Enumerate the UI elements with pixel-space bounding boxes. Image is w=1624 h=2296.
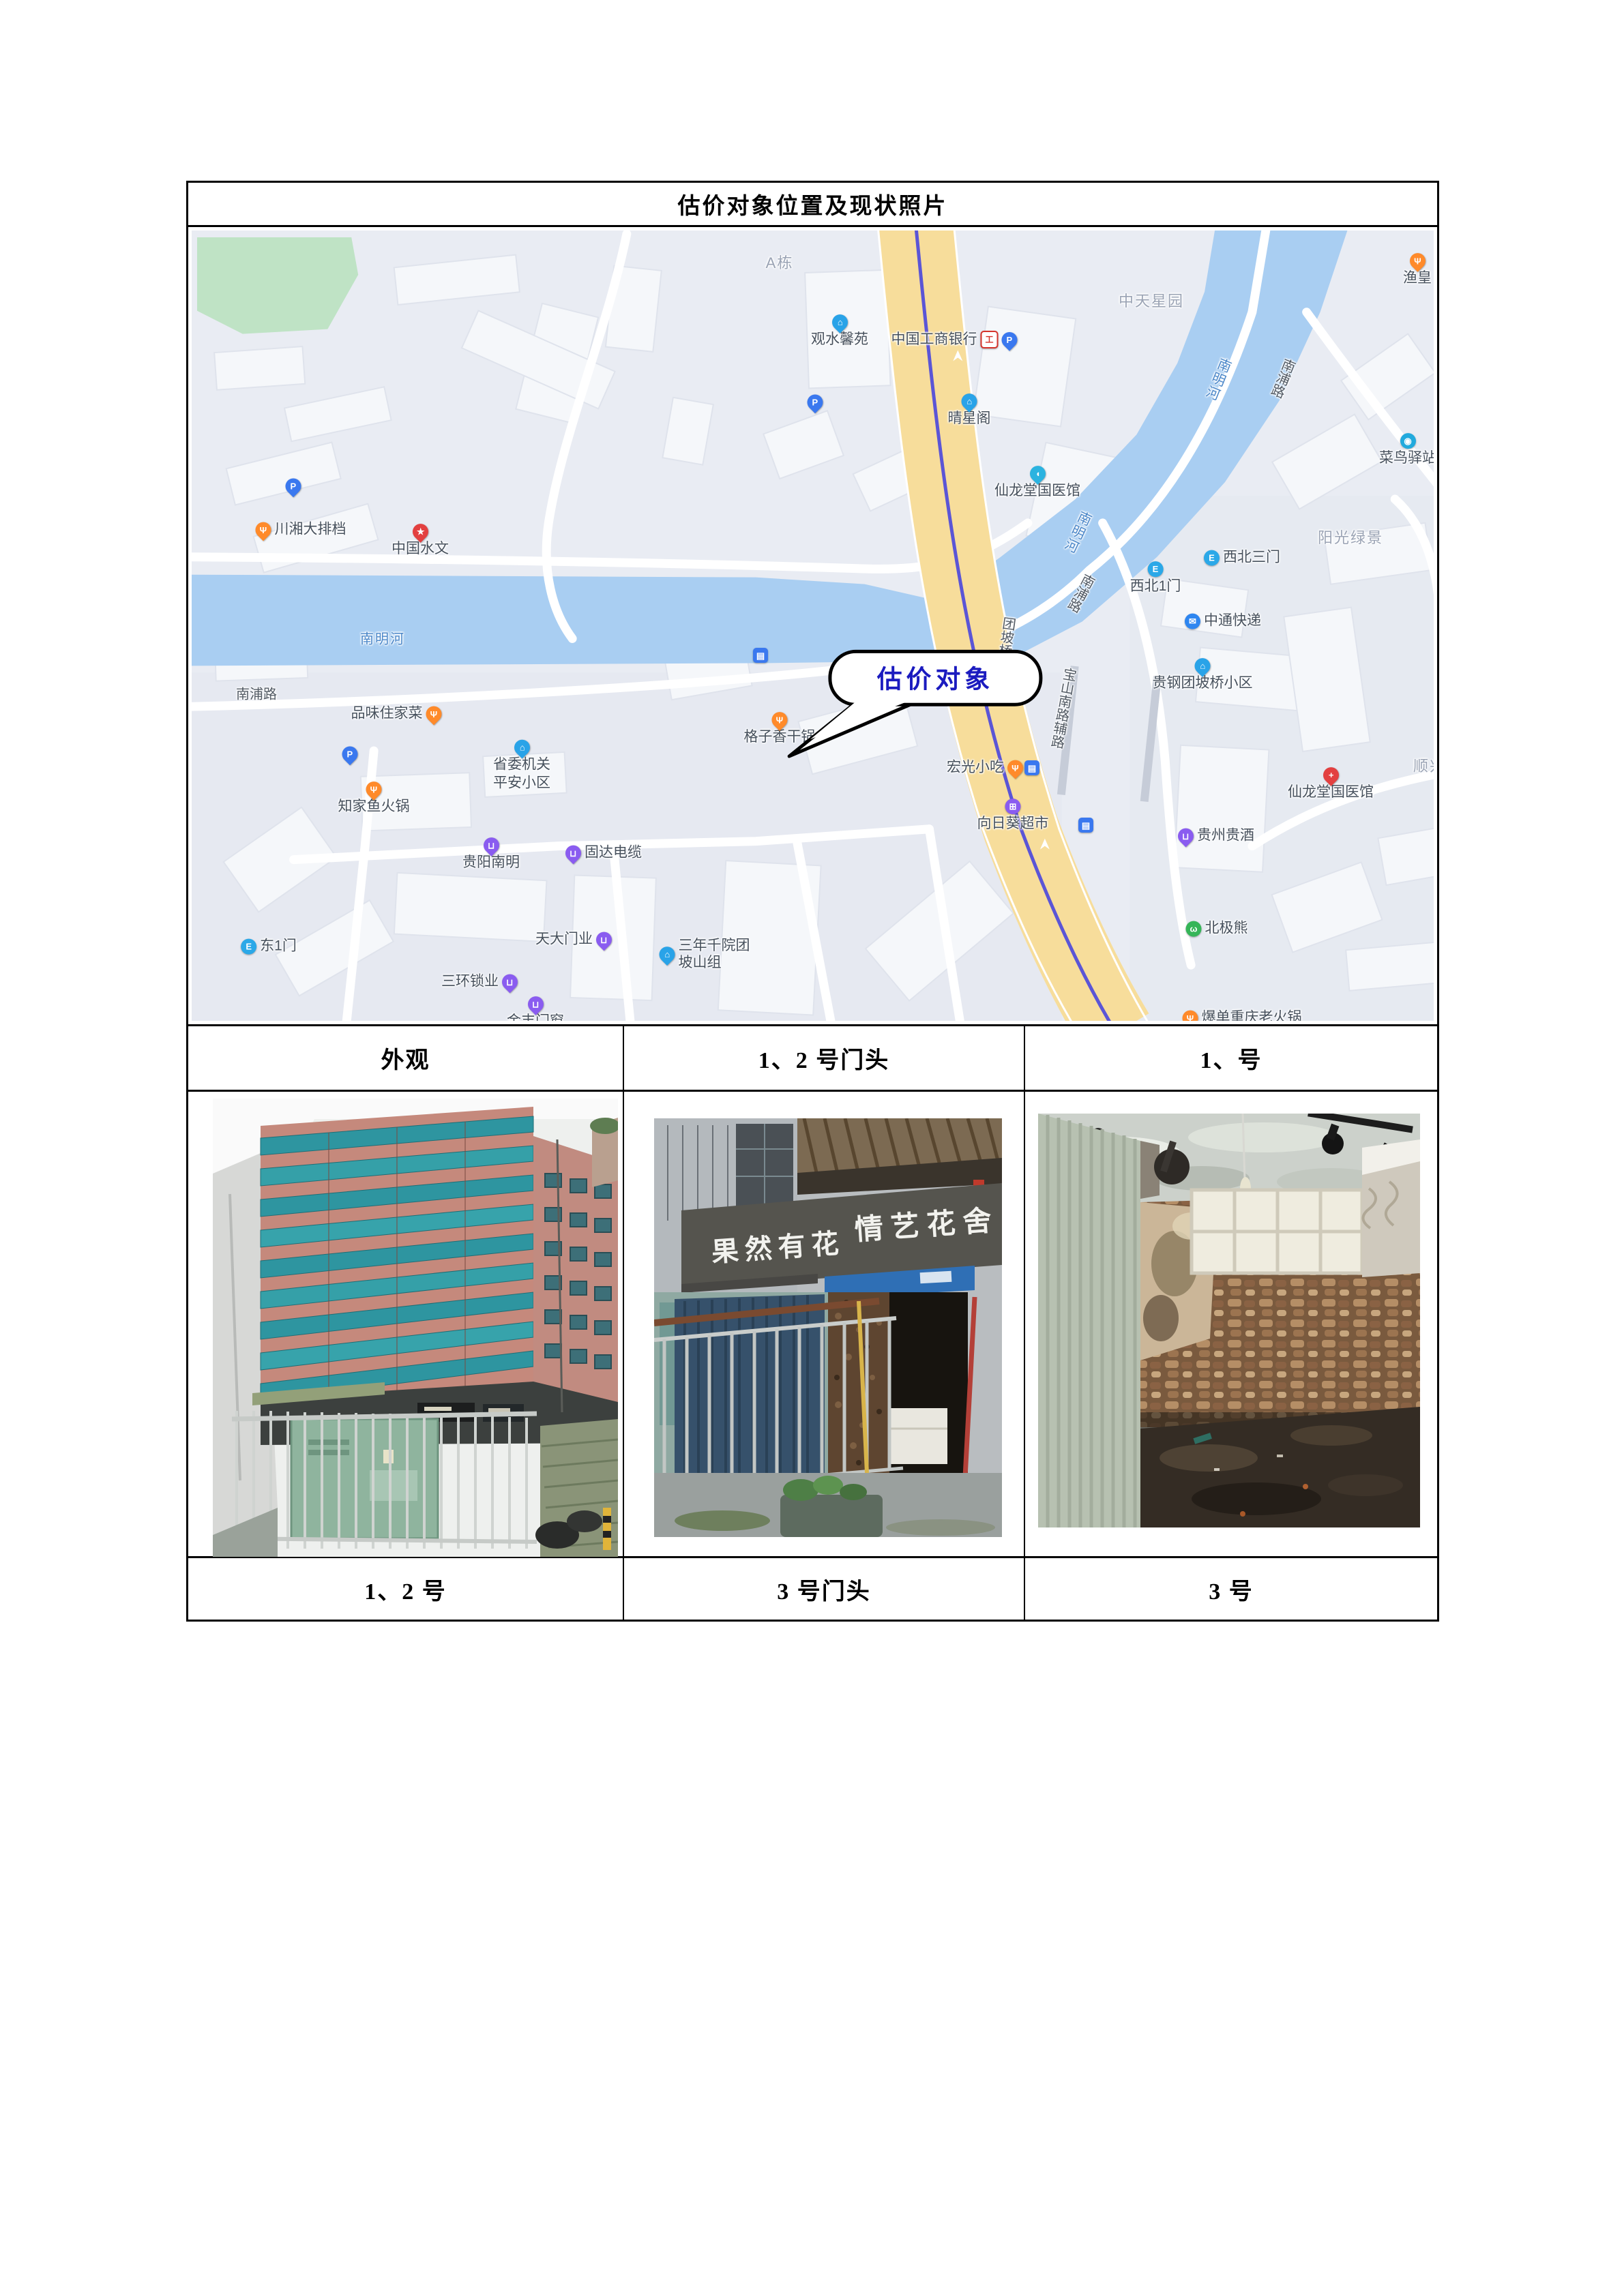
gate-icon: E <box>1148 561 1164 577</box>
poi-guda-dianlan[interactable]: ⊔ 固达电缆 <box>565 845 642 862</box>
poi-guanshui-xinyuan[interactable]: ⌂ 观水馨苑 <box>811 314 868 348</box>
area-label: 阳光绿景 <box>1318 526 1383 548</box>
shopping-icon: ⊔ <box>562 842 585 865</box>
poi-pinwei-zhujiacai[interactable]: 品味住家菜 Ψ <box>351 706 442 723</box>
bank-icon: 工 <box>981 331 999 348</box>
bird-icon: ◉ <box>1400 433 1416 449</box>
star-icon: ★ <box>409 520 432 543</box>
shopping-icon: ⊔ <box>593 929 615 951</box>
poi-sanhuan-suoye[interactable]: 三环锁业 ⊔ <box>441 974 518 991</box>
gate-icon: E <box>1204 550 1220 565</box>
poi-shengwei-pingan-xiaoqu[interactable]: ⌂ 省委机关 平安小区 <box>493 740 550 792</box>
food-icon: Ψ <box>1406 250 1429 272</box>
poi-sannianqianyuan[interactable]: ⌂ 三年千院团坡山组 <box>660 938 750 972</box>
poi-xibei-1-men[interactable]: E 西北1门 <box>1130 561 1181 595</box>
community-icon: ⌂ <box>1192 655 1214 677</box>
storefront-photo: 果然有花 情艺花舍 <box>654 1118 1002 1537</box>
area-label: 中天星园 <box>1119 289 1184 311</box>
poi-guiyang-nanming[interactable]: ⊔ 贵阳南明 <box>462 837 520 871</box>
shopping-icon: ⊔ <box>525 993 547 1015</box>
poi-yuhuang[interactable]: Ψ 渔皇 <box>1403 253 1432 287</box>
photo-row: 果然有花 情艺花舍 <box>188 1092 1437 1558</box>
poi-xibei-san-men[interactable]: E 西北三门 <box>1204 550 1280 567</box>
bus-icon: ▤ <box>1024 760 1039 775</box>
community-icon: ⌂ <box>958 390 981 413</box>
photo-cell-shopfront: 果然有花 情艺花舍 <box>624 1092 1025 1556</box>
community-icon: ⌂ <box>656 944 679 966</box>
area-label: 顺兴 <box>1413 754 1434 776</box>
food-icon: Ψ <box>769 709 791 731</box>
gate-icon: E <box>241 938 256 954</box>
document-page: 估价对象位置及现状照片 <box>0 0 1624 2296</box>
appraisal-photo-table: 估价对象位置及现状照片 <box>186 181 1439 1622</box>
caption-cell-3-door: 3 号门头 <box>624 1558 1025 1620</box>
river-label: 南明河 <box>360 628 405 648</box>
food-icon: Ψ <box>252 519 275 541</box>
header-cell-no1: 1、号 <box>1025 1026 1437 1090</box>
road-label: 南浦路 <box>236 683 277 703</box>
hospital-icon: + <box>1320 764 1342 786</box>
photo-cell-exterior <box>188 1092 624 1556</box>
cart-icon: ⊞ <box>1005 799 1021 814</box>
shopping-icon: ⊔ <box>499 971 521 994</box>
caption-cell-12: 1、2 号 <box>188 1558 624 1620</box>
parking-poi[interactable]: P <box>286 479 301 494</box>
poi-tianda-menye[interactable]: 天大门业 ⊔ <box>535 931 612 949</box>
bus-stop-poi[interactable]: ▤ <box>753 648 768 663</box>
header-cell-shopfront-12: 1、2 号门头 <box>624 1026 1025 1090</box>
poi-guigang-tuanpoqiao-xiaoqu[interactable]: ⌂ 贵钢团坡桥小区 <box>1153 658 1253 692</box>
building-exterior-photo <box>213 1099 618 1557</box>
poi-chuanxiang-dapaidang[interactable]: Ψ 川湘大排档 <box>256 522 346 539</box>
bus-icon: ▤ <box>753 648 768 663</box>
community-icon: ⌂ <box>511 736 533 759</box>
parking-poi[interactable]: P <box>808 395 823 411</box>
parking-icon: P <box>804 391 827 414</box>
shopping-icon: ⊔ <box>1175 825 1197 848</box>
area-label: A栋 <box>766 251 794 273</box>
poi-xianlongtang-guoyiguan-south[interactable]: + 仙龙堂国医馆 <box>1288 767 1374 801</box>
poi-xianlongtang-guoyiguan-north[interactable]: ◖ 仙龙堂国医馆 <box>994 466 1080 500</box>
photo-cell-interior <box>1025 1092 1437 1556</box>
food-icon: Ψ <box>363 778 385 801</box>
food-icon: Ψ <box>1004 757 1027 779</box>
caption-cell-3: 3 号 <box>1025 1558 1437 1620</box>
poi-zhongguo-shuiwen[interactable]: ★ 中国水文 <box>392 524 449 558</box>
page-title: 估价对象位置及现状照片 <box>678 188 948 220</box>
poi-baodan-chongqing-laohuoguo[interactable]: Ψ 爆单重庆老火锅 <box>1183 1010 1302 1021</box>
courier-icon: ✉ <box>1185 613 1200 629</box>
bus-stop-poi[interactable]: ▤ <box>1078 818 1093 833</box>
shopping-icon: ⊔ <box>480 834 503 856</box>
parking-poi[interactable]: P <box>342 747 358 762</box>
parking-icon: P <box>999 329 1021 351</box>
food-icon: Ψ <box>423 703 445 726</box>
poi-gezixiang-ganguo[interactable]: Ψ 格子香干锅 <box>744 712 816 746</box>
poi-jinfeng-menchuang[interactable]: ⊔ 金丰门窗 <box>507 996 564 1021</box>
poi-zhongtong-kuaidi[interactable]: ✉ 中通快递 <box>1185 613 1261 630</box>
poi-dong1men[interactable]: E 东1门 <box>241 938 297 955</box>
poi-zhijiayu-huoguo[interactable]: Ψ 知家鱼火锅 <box>338 781 410 816</box>
parking-icon: P <box>282 475 305 498</box>
location-map[interactable]: 南浦路 南浦路 南浦路 南明河 南明河 南明河 团坡桥 宝山南路辅路 A栋 中天… <box>192 230 1434 1021</box>
poi-xiangrikui-chaoshi[interactable]: ⊞ 向日葵超市 <box>977 799 1049 833</box>
table-title-row: 估价对象位置及现状照片 <box>188 183 1437 227</box>
food-icon: Ψ <box>1179 1007 1202 1021</box>
bear-icon: ω <box>1186 921 1202 936</box>
parking-icon: P <box>339 743 361 766</box>
map-row: 南浦路 南浦路 南浦路 南明河 南明河 南明河 团坡桥 宝山南路辅路 A栋 中天… <box>188 227 1437 1026</box>
header-row: 外观 1、2 号门头 1、号 <box>188 1026 1437 1092</box>
interior-photo <box>1038 1114 1420 1527</box>
bus-stop-poi[interactable]: ▤ <box>1024 760 1039 775</box>
poi-hongguang-xiaochi[interactable]: 宏光小吃 Ψ <box>947 760 1023 777</box>
bus-icon: ▤ <box>1078 818 1093 833</box>
community-icon: ⌂ <box>829 311 851 333</box>
header-cell-exterior: 外观 <box>188 1026 624 1090</box>
poi-guizhou-guijiu[interactable]: ⊔ 贵州贵酒 <box>1178 828 1254 845</box>
poi-beijixiong[interactable]: ω 北极熊 <box>1186 921 1248 938</box>
pill-icon: ◖ <box>1027 462 1049 485</box>
poi-qingxingge[interactable]: ⌂ 晴星阁 <box>948 393 991 428</box>
poi-icbc[interactable]: 中国工商银行 工 P <box>891 331 1018 348</box>
caption-row: 1、2 号 3 号门头 3 号 <box>188 1558 1437 1620</box>
poi-cainiao-yizhan[interactable]: ◉ 菜鸟驿站 <box>1379 433 1434 467</box>
